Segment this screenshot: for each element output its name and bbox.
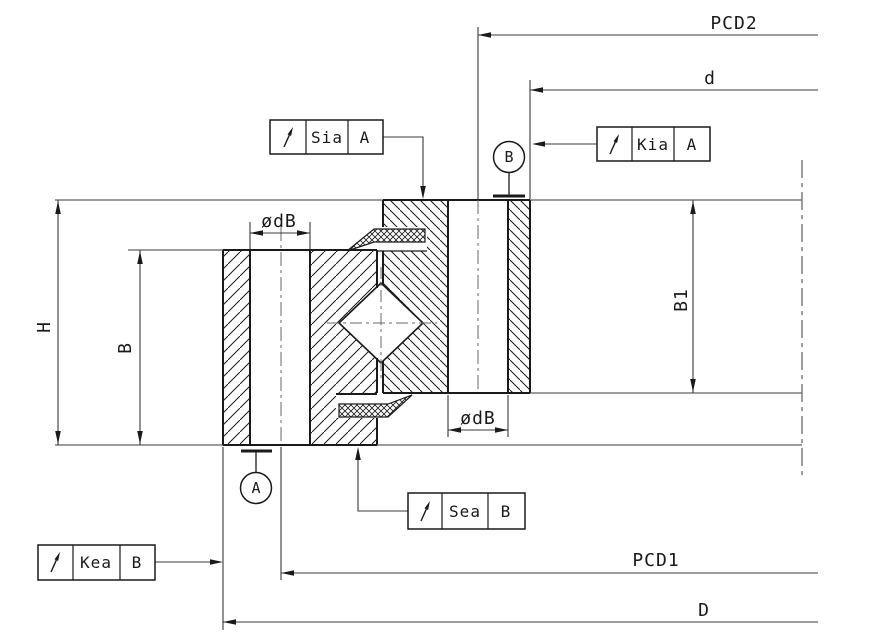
frame-sea-label: Sea	[449, 502, 481, 521]
frame-kia-leader-arrow	[532, 141, 545, 147]
inner-ring-right-wall	[508, 200, 530, 393]
dim-odb-bottom-arrow-left	[448, 427, 461, 433]
frame-kea-datum: B	[132, 553, 143, 572]
frame-sea-leader-arrow	[355, 447, 361, 460]
dim-b-arrow-top	[137, 251, 143, 264]
frame-kia-datum: A	[687, 135, 698, 154]
frame-sea: Sea B	[355, 447, 525, 529]
dim-pcd1: PCD1	[281, 550, 818, 576]
frame-kia: Kia A	[532, 127, 710, 161]
bearing-cross-section-drawing: H B B1 ødB ødB PCD2 d	[0, 0, 869, 641]
datum-b-symbol: B	[493, 142, 525, 197]
dim-h-arrow-bottom	[55, 431, 61, 444]
label-b: B	[115, 342, 136, 354]
datum-b-letter: B	[504, 148, 513, 166]
dim-d-outer-arrow	[223, 619, 236, 625]
frame-sia-label: Sia	[311, 128, 343, 147]
dim-pcd2: PCD2	[478, 13, 818, 38]
dim-pcd2-arrow	[478, 32, 491, 38]
dim-odb-top-arrow-right	[297, 230, 310, 236]
dim-odb-top: ødB	[250, 211, 310, 236]
dim-b1-arrow-bottom	[690, 379, 696, 392]
dim-b: B	[115, 250, 143, 445]
dim-b1-arrow-top	[690, 201, 696, 214]
label-pcd2: PCD2	[710, 13, 757, 34]
dim-pcd1-arrow	[281, 570, 294, 576]
label-h: H	[34, 321, 55, 333]
frame-kia-label: Kia	[637, 135, 669, 154]
dim-odb-bottom-arrow-right	[495, 427, 508, 433]
frame-sia-leader	[383, 137, 423, 187]
dim-d-outer: D	[223, 600, 818, 625]
datum-a-symbol: A	[241, 451, 273, 504]
label-d: d	[704, 68, 716, 89]
dim-d-bore: d	[530, 68, 818, 93]
dim-h-arrow-top	[55, 201, 61, 214]
frame-kea: Kea B	[38, 545, 223, 580]
dim-b-arrow-bottom	[137, 431, 143, 444]
frame-sea-datum: B	[501, 502, 512, 521]
datum-a-letter: A	[251, 479, 260, 497]
dim-h: H	[34, 200, 61, 445]
frame-kea-leader-arrow	[210, 559, 223, 565]
label-odb-bottom: ødB	[460, 408, 496, 429]
dim-d-arrow	[530, 87, 543, 93]
frame-sia-datum: A	[360, 128, 371, 147]
frame-sea-leader	[358, 460, 408, 511]
dim-odb-bottom: ødB	[448, 408, 508, 433]
dim-b1: B1	[671, 200, 696, 393]
frame-sia: Sia A	[270, 120, 426, 199]
label-odb-top: ødB	[261, 211, 297, 232]
frame-sia-leader-arrow	[420, 186, 426, 199]
drawing-sheet: H B B1 ødB ødB PCD2 d	[0, 0, 869, 641]
label-pcd1: PCD1	[632, 550, 679, 571]
frame-kea-label: Kea	[80, 553, 112, 572]
outer-ring-left-wall	[223, 250, 250, 445]
label-b1: B1	[671, 288, 692, 312]
label-d-outer: D	[698, 600, 710, 621]
